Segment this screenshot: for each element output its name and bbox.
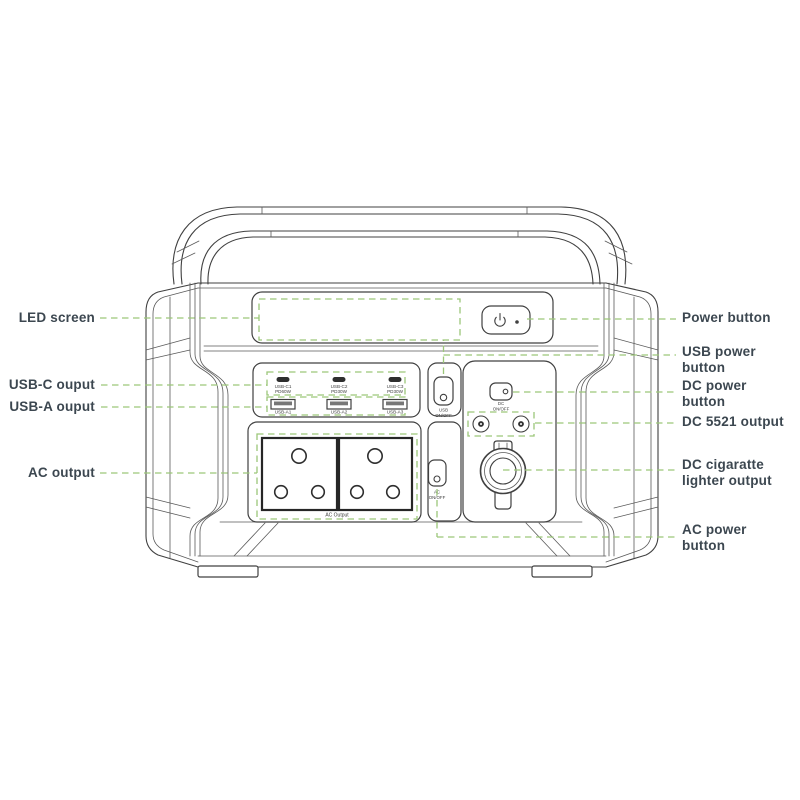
usb-c-port-2: USB-C2PD30W [331,377,348,394]
ac-power-button: AC ON/OFF [428,422,461,521]
callout-dc-cigarette-lighter: DC cigarattelighter output [682,457,772,488]
svg-text:DC: DC [498,401,504,406]
ac-socket-1 [262,438,337,510]
svg-text:ON/OFF: ON/OFF [429,495,446,500]
callout-usb-a-output: USB-A ouput [9,399,95,415]
dc-power-button: DC ON/OFF [490,383,512,412]
callout-usb-c-output: USB-C ouput [9,377,95,393]
svg-text:USB-C1PD60W: USB-C1PD60W [275,384,292,394]
svg-text:USB: USB [439,408,448,413]
left-foot [198,566,258,577]
callout-dc-power-button: DC powerbutton [682,378,747,409]
callout-ac-output: AC output [28,465,95,481]
callout-power-button: Power button [682,310,771,326]
right-foot [532,566,592,577]
svg-text:ON/OFF: ON/OFF [493,407,510,412]
top-panel [252,292,553,343]
svg-text:USB-A3: USB-A3 [387,410,404,415]
svg-text:USB-C3PD30W: USB-C3PD30W [387,384,404,394]
handle [172,207,632,284]
usb-c-port-3: USB-C3PD30W [387,377,404,394]
callout-led-screen: LED screen [19,310,95,326]
power-station-line-drawing: USB-C1PD60W USB-C2PD30W USB-C3PD30W USB-… [0,0,800,800]
svg-text:USB-C2PD30W: USB-C2PD30W [331,384,348,394]
ac-panel: AC Output [248,422,421,522]
svg-text:USB-A1: USB-A1 [275,410,292,415]
usb-panel: USB-C1PD60W USB-C2PD30W USB-C3PD30W USB-… [253,363,420,417]
ac-socket-2 [339,438,412,510]
callout-ac-power-button: AC powerbutton [682,522,747,553]
feet [198,566,592,577]
svg-text:ON/OFF: ON/OFF [435,413,452,418]
callout-usb-power-button: USB powerbutton [682,344,756,375]
svg-text:USB-A2: USB-A2 [331,410,348,415]
usb-c-port-1: USB-C1PD60W [275,377,292,394]
power-led-dot [515,320,519,324]
dc-panel: DC ON/OFF [463,361,556,522]
diagram-stage: USB-C1PD60W USB-C2PD30W USB-C3PD30W USB-… [0,0,800,800]
power-button [482,306,530,334]
usb-power-button: USB ON/OFF [428,363,461,418]
callout-dc5521-output: DC 5521 output [682,414,784,430]
ac-output-caption: AC Output [325,513,349,519]
